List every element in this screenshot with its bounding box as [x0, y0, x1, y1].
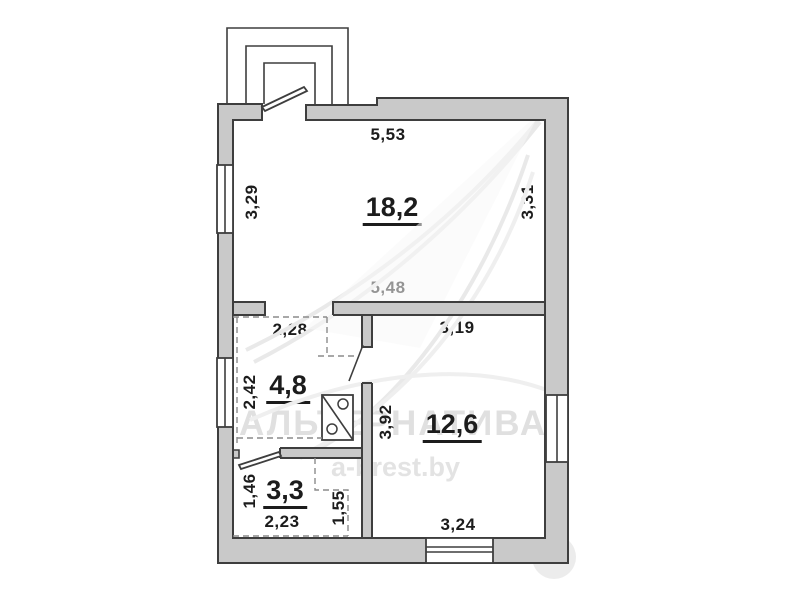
window-left-lower [217, 358, 233, 427]
wall-mid-right [333, 302, 568, 315]
bathroom-door-leaf-icon [239, 452, 281, 469]
partition-horizontal [280, 448, 362, 458]
walls-fill [218, 98, 568, 563]
wall-top-corner-block [218, 104, 262, 120]
partition-vertical-stub [362, 315, 372, 347]
boiler-burner [338, 399, 348, 409]
dashed-line [315, 458, 348, 536]
window-bottom [426, 538, 493, 563]
dashed-line [318, 317, 358, 356]
wall-top-a [306, 105, 377, 120]
porch-step-outer [227, 28, 348, 104]
outer-wall-outline [218, 98, 568, 563]
wall-mid-left [218, 302, 265, 315]
window-frame [426, 538, 493, 563]
wall-bottom [218, 538, 568, 563]
porch-steps [227, 28, 348, 104]
floorplan-canvas: АЛЬТЕРНАТИВА a-brest.by [0, 0, 800, 599]
window-right [546, 395, 568, 462]
wall-top-b [377, 98, 568, 120]
boiler-burner [327, 424, 337, 434]
floor-plan-drawing [0, 0, 800, 599]
wall-right [545, 98, 568, 563]
partition-vertical [362, 383, 372, 538]
room2-door-leaf-icon [349, 345, 363, 381]
boiler-icon [322, 395, 353, 440]
entry-door-leaf-icon [262, 87, 307, 111]
window-left-upper [217, 165, 233, 233]
windows [217, 165, 568, 563]
walls-outline [218, 98, 568, 563]
